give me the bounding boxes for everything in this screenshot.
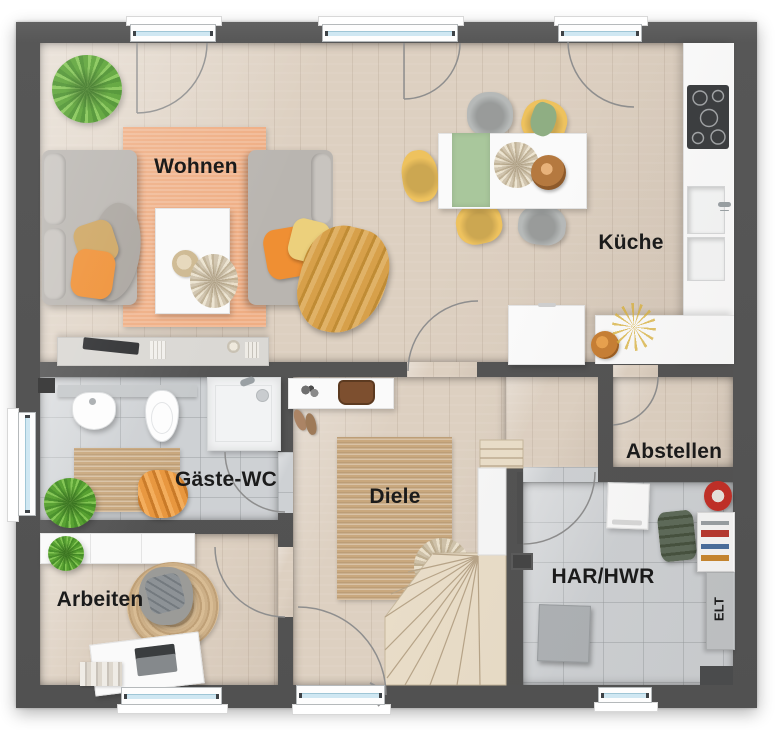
window-gaeste-wc	[18, 412, 36, 516]
cooktop-burners	[687, 85, 729, 149]
shelf-items	[701, 517, 729, 565]
window-sill	[117, 704, 228, 714]
fruit-bowl-copper	[531, 155, 566, 190]
sofa-left-backrest	[44, 228, 66, 300]
window-glass	[561, 31, 639, 36]
laptop	[134, 644, 177, 677]
kitchen-sink-basin	[687, 186, 725, 234]
room-label-har-hwr: HAR/HWR	[552, 565, 655, 589]
window-glass	[124, 694, 219, 699]
hall-bag	[338, 380, 375, 405]
room-label-diele: Diele	[369, 485, 420, 509]
wc-wall-recess	[38, 378, 55, 393]
shower-drain	[256, 389, 269, 402]
hvac-unit	[537, 604, 591, 663]
entrance-door-glass	[299, 693, 382, 698]
washbasin-faucet	[89, 398, 96, 405]
desk-books	[80, 662, 122, 686]
entrance-door	[296, 685, 385, 705]
dried-plant-vase	[190, 254, 238, 308]
palm-plant	[52, 55, 122, 123]
fridge-cabinet	[508, 305, 585, 365]
dried-grass-plant	[414, 538, 470, 594]
threshold-arbeiten	[278, 547, 293, 617]
room-label-abstellen: Abstellen	[626, 440, 722, 464]
window-arbeiten	[121, 687, 222, 705]
toilet-lid-line	[151, 402, 173, 434]
kitchen-sink-basin	[687, 237, 725, 281]
sofa-left-backrest	[44, 153, 66, 225]
washing-machine-detail	[612, 519, 642, 525]
dark-utility-box	[700, 666, 733, 685]
red-bucket	[704, 481, 732, 511]
threshold-gaeste-wc	[278, 452, 293, 513]
window-living-left	[130, 24, 216, 42]
table-runner-green	[452, 133, 490, 207]
window-glass	[133, 31, 213, 36]
window-sill	[594, 702, 658, 712]
floor-plan-canvas: Wohnen Küche Gäste-WC Diele Abstellen Ar…	[0, 0, 775, 730]
entrance-step	[292, 704, 391, 715]
room-label-gaeste-wc: Gäste-WC	[175, 468, 277, 492]
meter-box	[511, 553, 533, 570]
threshold-abstellen	[613, 365, 658, 377]
keys-decor	[299, 384, 321, 399]
dining-chair-gray	[467, 92, 513, 136]
window-glass	[601, 693, 649, 698]
pillow-orange	[69, 247, 117, 300]
floor-diele-corridor	[506, 377, 598, 467]
flower-sprigs-yellow	[612, 303, 656, 351]
room-label-elt: ELT	[712, 597, 727, 621]
wc-plant	[44, 478, 96, 528]
kitchen-faucet	[718, 202, 731, 207]
threshold-har-hwr	[523, 467, 598, 482]
laundry-bag	[656, 509, 697, 562]
office-plant	[48, 536, 84, 571]
window-living-right	[322, 24, 458, 42]
window-har-hwr	[598, 687, 652, 703]
decor-candles	[227, 340, 240, 353]
fridge-handle	[538, 303, 556, 307]
room-label-wohnen: Wohnen	[154, 155, 238, 179]
room-label-kueche: Küche	[598, 231, 663, 255]
window-glass	[25, 415, 30, 513]
window-glass	[325, 31, 455, 36]
threshold-kitchen-diele	[407, 362, 477, 377]
decor-books	[245, 342, 259, 358]
decor-books	[150, 341, 166, 359]
sofa-right-backrest	[311, 153, 331, 225]
window-kitchen	[558, 24, 642, 42]
room-label-arbeiten: Arbeiten	[57, 588, 144, 612]
